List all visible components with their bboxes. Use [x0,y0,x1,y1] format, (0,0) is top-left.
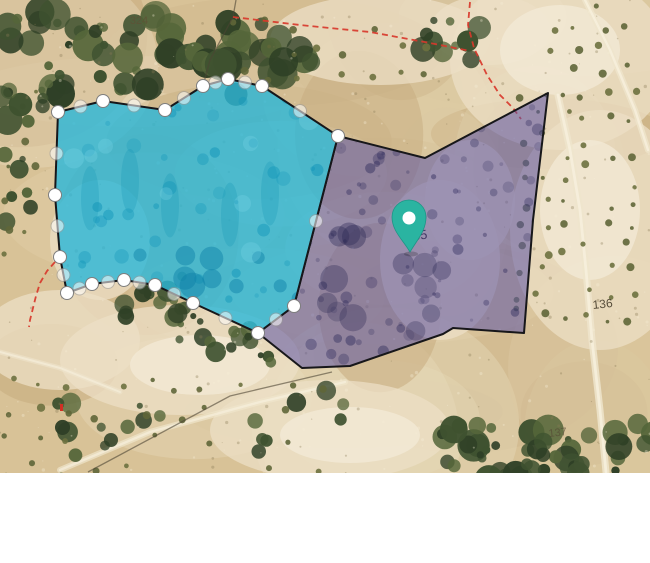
midpoint-handle[interactable] [310,215,323,228]
midpoint-handle[interactable] [209,76,222,89]
location-pin-hole [403,212,416,225]
satellite-map[interactable]: 324135136137 [0,0,650,473]
vertex-handle[interactable] [256,80,269,93]
midpoint-handle[interactable] [168,288,181,301]
midpoint-handle[interactable] [51,220,64,233]
vertex-handle[interactable] [197,80,210,93]
vertex-handle[interactable] [49,189,62,202]
midpoint-handle[interactable] [102,276,115,289]
vertex-handle[interactable] [52,106,65,119]
pin-shadow [404,252,418,257]
vertex-handle[interactable] [86,278,99,291]
midpoint-handle[interactable] [74,100,87,113]
midpoint-handle[interactable] [294,105,307,118]
vertex-handle[interactable] [159,104,172,117]
map-viewport[interactable]: 324135136137 [0,0,650,563]
page-background [0,473,650,563]
midpoint-handle[interactable] [73,282,86,295]
parcel-number-label-136: 136 [592,296,614,312]
midpoint-handle[interactable] [219,312,232,325]
vertex-handle[interactable] [332,130,345,143]
vertex-handle[interactable] [288,300,301,313]
midpoint-handle[interactable] [128,99,141,112]
midpoint-handle[interactable] [50,147,63,160]
vertex-handle[interactable] [222,73,235,86]
midpoint-handle[interactable] [178,92,191,105]
vertex-handle[interactable] [149,279,162,292]
vertex-handle[interactable] [187,297,200,310]
vertex-handle[interactable] [252,327,265,340]
midpoint-handle[interactable] [239,76,252,89]
parcel-number-label-324: 324 [130,15,148,27]
midpoint-handle[interactable] [57,269,70,282]
vertex-handle[interactable] [118,274,131,287]
small-red-map-symbol [60,404,63,411]
vertex-handle[interactable] [61,287,74,300]
midpoint-handle[interactable] [270,313,283,326]
parcel-number-label-137: 137 [548,426,568,440]
vertex-handle[interactable] [54,251,67,264]
vertex-handle[interactable] [97,95,110,108]
midpoint-handle[interactable] [133,276,146,289]
